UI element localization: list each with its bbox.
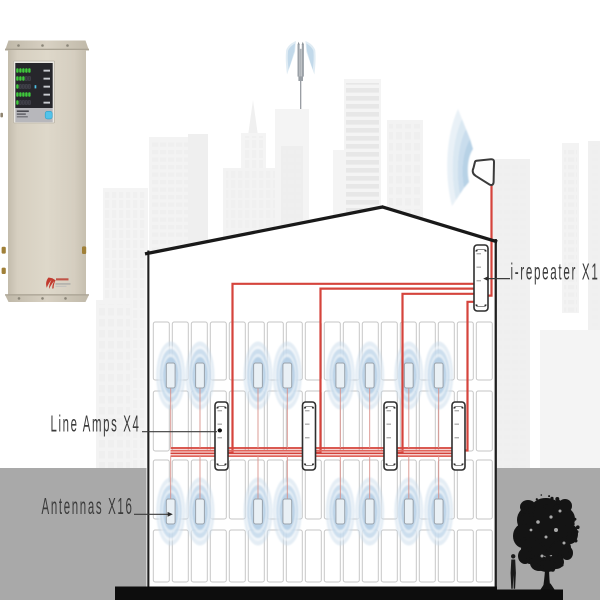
- svg-text:i-repeater X1: i-repeater X1: [511, 258, 600, 285]
- svg-text:Line Amps X4: Line Amps X4: [51, 410, 141, 437]
- svg-text:Antennas X16: Antennas X16: [42, 492, 134, 519]
